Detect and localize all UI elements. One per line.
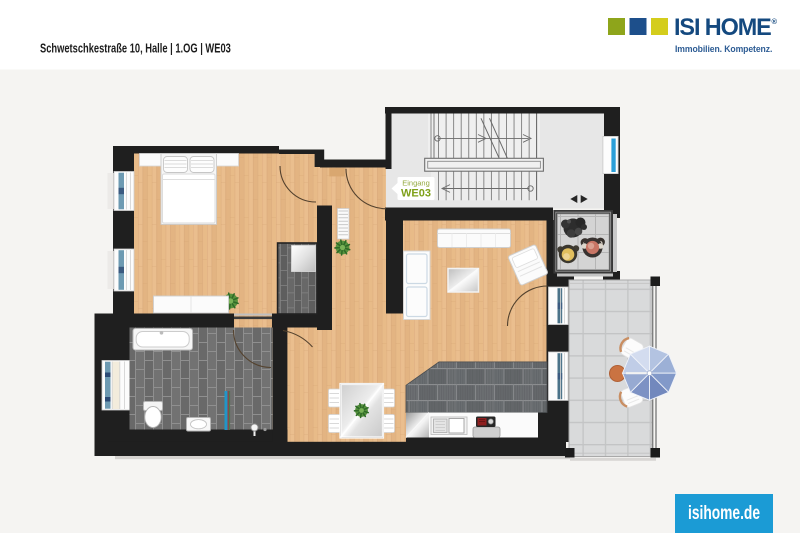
svg-text:WE03: WE03 [401,188,431,200]
svg-text:Eingang: Eingang [402,179,430,188]
svg-text:isihome.de: isihome.de [688,502,760,524]
svg-text:®: ® [772,17,778,26]
svg-text:ISI HOME: ISI HOME [674,15,771,41]
svg-text:Schwetschkestraße 10, Halle |: Schwetschkestraße 10, Halle | 1.OG | WE0… [40,42,231,56]
svg-text:Immobilien. Kompetenz.: Immobilien. Kompetenz. [675,43,772,53]
